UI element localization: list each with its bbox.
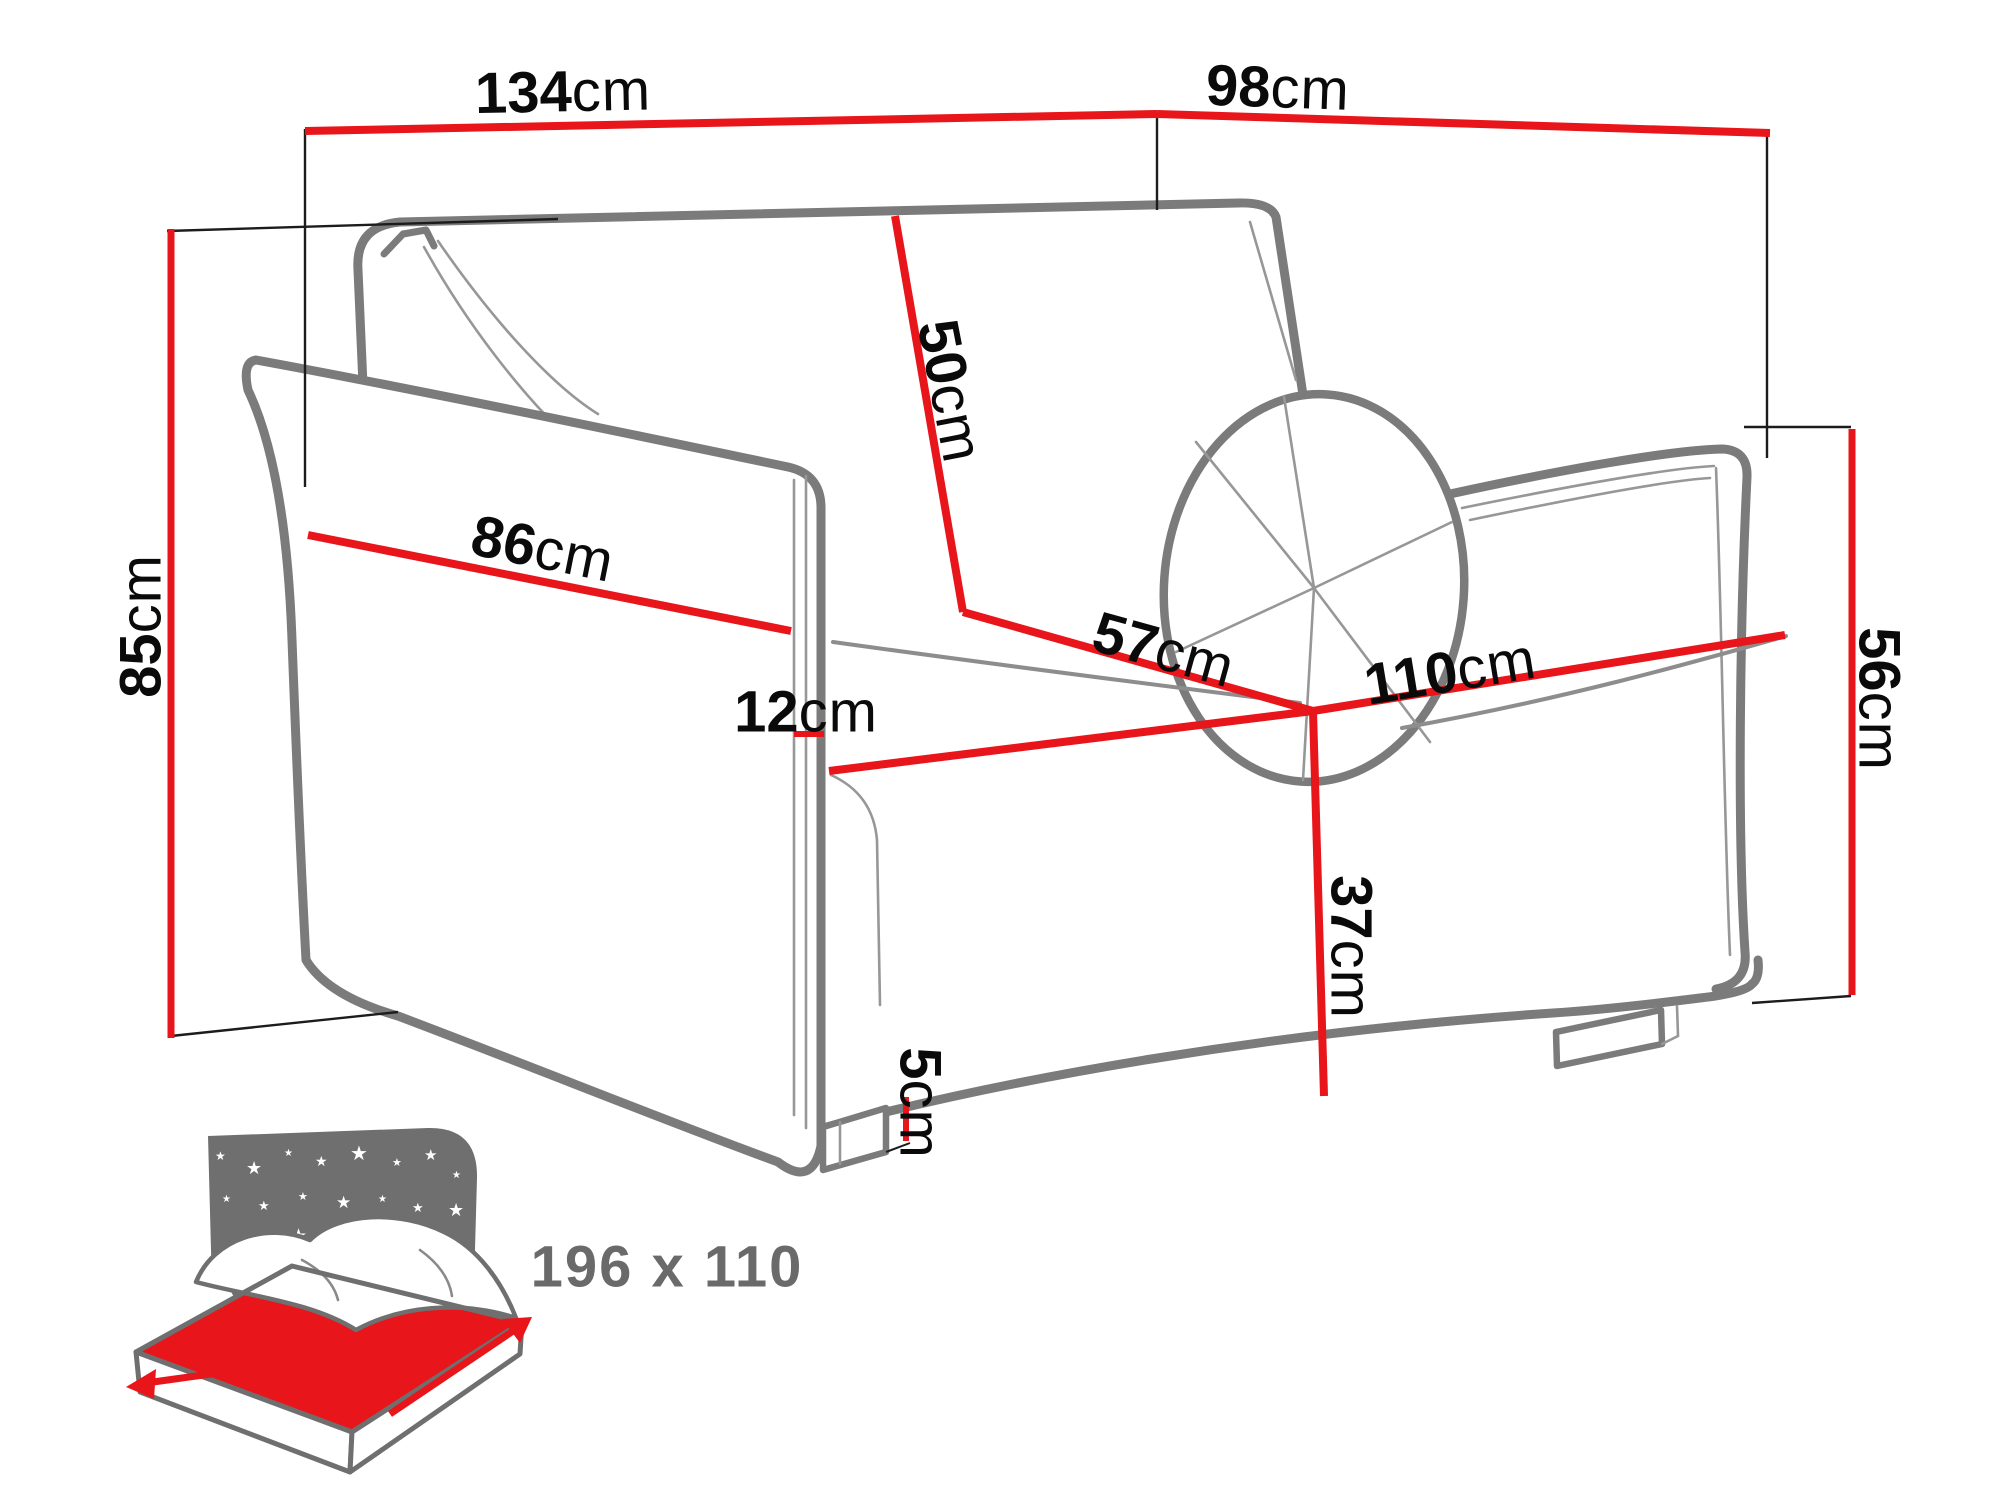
svg-text:★: ★ <box>298 1190 308 1203</box>
svg-text:★: ★ <box>315 1154 328 1170</box>
label-armrest-width: 12cm <box>734 679 878 744</box>
dim-line-overall-width <box>305 114 1157 131</box>
svg-text:★: ★ <box>336 1193 351 1213</box>
diagram-canvas: 134cm 98cm 85cm 86cm 50cm 57cm 110cm 37c… <box>0 0 2000 1500</box>
sleeping-size-label: 196 x 110 <box>531 1234 804 1299</box>
svg-text:★: ★ <box>258 1199 270 1214</box>
right-armrest-seam-3 <box>1716 468 1730 955</box>
seat-cushion-corner-seam <box>831 775 880 1005</box>
label-overall-height: 85cm <box>108 554 173 698</box>
front-right-leg <box>1556 1010 1662 1066</box>
label-seat-height: 37cm <box>1319 875 1384 1019</box>
svg-text:★: ★ <box>424 1146 437 1164</box>
label-floor-clearance: 5cm <box>888 1047 953 1159</box>
helper-bottom-left-diagonal <box>171 1012 398 1036</box>
label-overall-width: 134cm <box>474 57 651 126</box>
svg-text:★: ★ <box>215 1149 226 1163</box>
sofa-drawing <box>246 203 1786 1172</box>
label-overall-depth: 98cm <box>1205 53 1351 123</box>
svg-text:★: ★ <box>412 1201 424 1216</box>
front-left-leg <box>823 1108 886 1170</box>
svg-text:★: ★ <box>392 1156 402 1169</box>
svg-text:★: ★ <box>452 1170 461 1181</box>
helper-right-bottom-horizontal <box>1752 996 1851 1003</box>
svg-text:★: ★ <box>284 1148 293 1159</box>
svg-text:★: ★ <box>378 1194 387 1205</box>
svg-text:★: ★ <box>448 1200 464 1221</box>
sleeping-area-icon: ★★ ★★ ★★ ★★ ★★ ★★ ★★ ★★ ★★ ★★ ★★ ★★ ★★ ★… <box>112 1128 532 1472</box>
svg-text:★: ★ <box>246 1158 262 1179</box>
sofa-dimension-diagram: 134cm 98cm 85cm 86cm 50cm 57cm 110cm 37c… <box>0 0 2000 1500</box>
right-armrest-outline <box>1450 449 1747 989</box>
label-side-height: 56cm <box>1847 627 1912 771</box>
left-armrest-outline <box>246 360 821 1172</box>
svg-text:★: ★ <box>350 1141 368 1165</box>
svg-text:★: ★ <box>222 1194 231 1205</box>
